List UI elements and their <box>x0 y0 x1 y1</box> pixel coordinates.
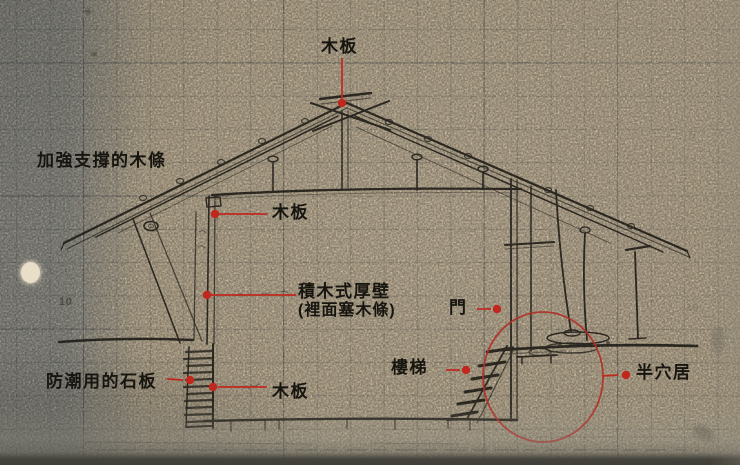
dot-stone-slabs <box>186 376 194 384</box>
dot-wall-plank <box>211 210 219 218</box>
label-damp-proof-stone-slabs: 防潮用的石板 <box>46 372 157 392</box>
paper-mark-10-right: 10 <box>686 302 699 314</box>
dot-door <box>493 305 501 313</box>
dot-stairs <box>462 366 470 374</box>
leader-half-pit <box>603 375 618 376</box>
leader-stone-slabs <box>167 379 183 380</box>
paper-mark-10-left: 10 <box>59 296 72 308</box>
label-stacked-timber-wall-line2: (裡面塞木條) <box>298 302 396 320</box>
paper-white-spot <box>21 262 40 283</box>
scanned-sketch-page: 木板 加強支撐的木條 木板 積木式厚壁 (裡面塞木條) 門 樓梯 防潮用的石板 … <box>0 0 740 465</box>
label-half-pit-dwelling: 半穴居 <box>636 363 692 383</box>
label-floor-plank: 木板 <box>272 382 309 402</box>
label-stacked-timber-wall: 積木式厚壁 (裡面塞木條) <box>298 282 396 320</box>
dot-floor-plank <box>209 383 217 391</box>
dot-roof-plank-top <box>338 99 346 107</box>
paper-mark-5-right: 5 <box>690 130 696 141</box>
dot-half-pit <box>622 371 630 379</box>
house-section-sketch <box>0 0 740 465</box>
paper-grain-texture <box>0 0 740 465</box>
label-stacked-timber-wall-line1: 積木式厚壁 <box>298 282 396 302</box>
label-stairs: 樓梯 <box>391 358 428 378</box>
label-reinforcing-wood-strips: 加強支撐的木條 <box>37 151 167 171</box>
label-door: 門 <box>449 298 468 318</box>
label-wall-plank: 木板 <box>272 203 309 223</box>
label-roof-plank-top: 木板 <box>321 37 358 57</box>
dot-stacked-wall <box>203 291 211 299</box>
